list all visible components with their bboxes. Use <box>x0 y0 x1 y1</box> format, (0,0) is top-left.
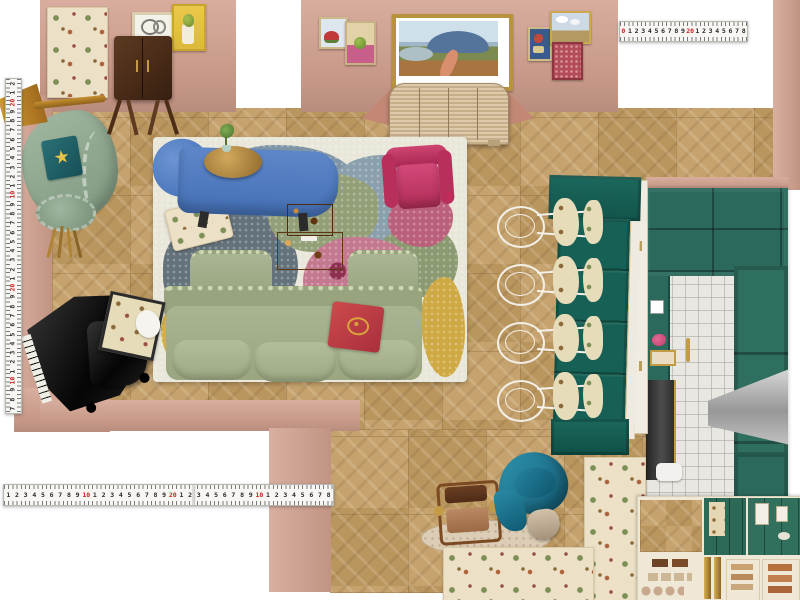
measuring-tape-bottom[interactable]: 1234567891012345678920123456789101234567… <box>3 484 334 506</box>
tape-unit-number: 9 <box>9 202 18 206</box>
inset-copper-item <box>768 564 792 571</box>
tape-unit-number: 9 <box>9 295 18 299</box>
brass-leg <box>66 228 72 258</box>
tape-unit-number: 6 <box>660 28 667 35</box>
inset-wallpaper-roll <box>709 502 725 536</box>
inset-shelf-column <box>726 559 760 600</box>
watermelon <box>324 31 339 43</box>
chair-cushion <box>553 314 579 362</box>
tape-unit-number: 8 <box>740 28 747 35</box>
pear-still-life[interactable] <box>172 4 206 51</box>
chair-cushion <box>553 372 579 420</box>
tape-unit-number: 10 <box>82 492 91 499</box>
tape-unit-number: 1 <box>627 28 634 35</box>
tape-unit-number: 3 <box>21 492 30 499</box>
tape-unit-number: 8 <box>673 28 680 35</box>
chair-cushion <box>553 198 579 246</box>
tape-unit-number: 7 <box>9 128 18 132</box>
tape-unit-number: 4 <box>117 492 126 499</box>
tape-unit-number: 2 <box>9 360 18 364</box>
dining-chair[interactable] <box>497 314 607 366</box>
starfish-icon: ★ <box>52 146 72 169</box>
kitchen-upper-cabinets <box>646 188 788 276</box>
tape-unit-number: 4 <box>203 492 212 499</box>
brass-leg <box>73 230 83 258</box>
tape-unit-number: 7 <box>734 28 741 35</box>
inset-board <box>652 559 668 567</box>
tape-unit-number: 2 <box>9 174 18 178</box>
chinoiserie-rug-wide[interactable] <box>443 547 594 600</box>
tape-unit-number: 1 <box>264 492 273 499</box>
tape-unit-number: 7 <box>229 492 238 499</box>
gallery-blue-still-life[interactable] <box>528 27 552 61</box>
tape-unit-number: 6 <box>220 492 229 499</box>
tape-unit-number: 7 <box>9 221 18 225</box>
tape-unit-number: 4 <box>714 28 721 35</box>
tape-unit-number: 6 <box>9 230 18 234</box>
tape-unit-number: 4 <box>9 156 18 160</box>
tape-unit-number: 3 <box>108 492 117 499</box>
tape-unit-number: 9 <box>9 388 18 392</box>
tape-unit-number: 2 <box>9 267 18 271</box>
sofa-cushion <box>172 340 252 380</box>
inset-floor-sample <box>640 500 702 552</box>
credenza-seam <box>448 88 449 140</box>
inset-board <box>672 559 688 567</box>
chair-wire-ring-inner <box>505 388 535 412</box>
tape-unit-number: 4 <box>9 249 18 253</box>
tape-unit-number: 8 <box>151 492 160 499</box>
still-life-base <box>533 46 544 53</box>
tape-unit-number: 8 <box>9 397 18 401</box>
safari-chair[interactable] <box>436 480 498 542</box>
tape-unit-number: 3 <box>707 28 714 35</box>
credenza-seam <box>477 88 478 140</box>
inset-jar-row <box>648 573 692 581</box>
tape-unit-number: 9 <box>680 28 687 35</box>
tape-unit-number: 2 <box>99 492 108 499</box>
tape-unit-number: 9 <box>9 110 18 114</box>
brass-stool-legs[interactable] <box>48 226 82 262</box>
tape-unit-number: 20 <box>168 492 177 499</box>
gold-crest-motif <box>346 316 370 337</box>
kitchen-photo[interactable] <box>646 188 788 545</box>
tape-unit-number: 5 <box>212 492 221 499</box>
tape-unit-number: 20 <box>9 98 18 106</box>
tape-unit-number: 8 <box>9 212 18 216</box>
brass-pot-rail <box>686 338 690 362</box>
tape-unit-number: 1 <box>4 492 13 499</box>
sofa-cushion <box>254 342 336 382</box>
tape-unit-number: 5 <box>125 492 134 499</box>
moodboard-canvas: ★ <box>0 0 800 600</box>
tape-unit-number: 2 <box>13 492 22 499</box>
inset-shelf-item <box>731 584 753 590</box>
stand-leg <box>126 100 139 136</box>
fruit-still-life[interactable] <box>345 21 376 65</box>
tape-unit-number: 4 <box>647 28 654 35</box>
tape-unit-number: 20 <box>686 28 694 35</box>
tape-unit-number: 10 <box>255 492 264 499</box>
pear <box>183 14 194 27</box>
measuring-tape-left[interactable]: 2120987654321109876543212098765432110987 <box>5 78 22 414</box>
inset-brass-bar <box>704 557 711 599</box>
tape-unit-number: 6 <box>47 492 56 499</box>
cabinet-body <box>114 36 172 100</box>
tape-unit-number: 8 <box>9 119 18 123</box>
tape-unit-number: 1 <box>177 492 186 499</box>
tape-unit-number: 3 <box>9 351 18 355</box>
chair-wire-ring-inner <box>505 330 535 354</box>
plant-leaves <box>220 124 234 138</box>
tape-unit-number: 8 <box>324 492 333 499</box>
measuring-tape-top[interactable]: 01234567892012345678 <box>619 21 748 42</box>
gallery-pink-abstract[interactable] <box>552 42 583 80</box>
stand-leg <box>147 100 160 136</box>
tape-unit-number: 0 <box>620 28 627 35</box>
inset-copper-item <box>768 586 792 593</box>
starfish-pillow[interactable]: ★ <box>41 135 83 181</box>
teal-swivel-chair[interactable] <box>488 447 584 550</box>
tape-unit-number: 1 <box>9 369 18 373</box>
inset-green-cabinet <box>748 498 800 555</box>
tape-unit-number: 3 <box>9 258 18 262</box>
chair-wire-ring-inner <box>505 272 535 296</box>
tape-unit-number: 7 <box>143 492 152 499</box>
tape-unit-number: 3 <box>281 492 290 499</box>
inset-label-card <box>776 506 788 522</box>
tape-unit-number: 9 <box>160 492 169 499</box>
safari-seat <box>446 507 490 534</box>
credenza-seam <box>419 88 420 140</box>
chaise-leg <box>198 211 210 228</box>
tape-unit-number: 1 <box>9 184 18 188</box>
safari-back-sling <box>444 485 487 504</box>
pedestal <box>182 24 194 44</box>
kitchen-plan-inset[interactable] <box>637 496 800 600</box>
tape-unit-number: 4 <box>290 492 299 499</box>
tape-unit-number: 7 <box>666 28 673 35</box>
tape-unit-number: 2 <box>9 82 18 86</box>
chair-wire-ring-inner <box>505 214 535 238</box>
tape-unit-number: 10 <box>9 377 18 385</box>
inset-brass-bar <box>714 557 721 599</box>
tape-unit-number: 8 <box>9 304 18 308</box>
tape-unit-number: 6 <box>307 492 316 499</box>
lamp-stem <box>34 95 106 109</box>
tape-unit-number: 9 <box>246 492 255 499</box>
tape-unit-number: 20 <box>9 284 18 292</box>
sage-velvet-sofa[interactable] <box>162 248 426 382</box>
wall-bottom-stub <box>269 428 331 592</box>
tape-unit-number: 6 <box>9 323 18 327</box>
inset-plate-stack <box>640 585 684 597</box>
tape-unit-number: 5 <box>9 239 18 243</box>
sketch-scribble <box>153 20 166 34</box>
wall-right-strip <box>773 0 800 190</box>
chair-cushion <box>583 316 603 360</box>
tape-unit-number: 5 <box>721 28 728 35</box>
tape-unit-number: 3 <box>640 28 647 35</box>
cabinet-handle <box>136 60 138 72</box>
tape-unit-number: 2 <box>633 28 640 35</box>
swivel-pedestal <box>526 507 562 541</box>
toaster <box>656 463 682 481</box>
inset-shelf-item <box>731 564 753 570</box>
tape-unit-number: 5 <box>298 492 307 499</box>
inset-green-cabinet <box>704 498 746 555</box>
brass-leg <box>57 226 63 258</box>
small-wall-frame <box>650 300 664 314</box>
tape-unit-number: 7 <box>9 407 18 411</box>
credenza-leg <box>488 140 500 146</box>
tape-unit-number: 6 <box>9 137 18 141</box>
tape-unit-number: 5 <box>9 332 18 336</box>
coastal-landscape-painting[interactable] <box>392 14 513 91</box>
chair-cushion <box>553 256 579 304</box>
chair-cushion <box>583 374 603 418</box>
brass-tray <box>650 350 676 366</box>
cloud <box>556 16 568 23</box>
tape-unit-number: 3 <box>194 492 203 499</box>
inset-shelf-item <box>731 574 753 580</box>
inset-copper-item <box>768 575 792 582</box>
reeded-credenza[interactable] <box>389 83 509 145</box>
tape-unit-number: 6 <box>134 492 143 499</box>
tape-unit-number: 7 <box>316 492 325 499</box>
tape-unit-number: 1 <box>694 28 701 35</box>
tape-unit-number: 7 <box>9 314 18 318</box>
tape-unit-number: 5 <box>39 492 48 499</box>
red-blossom <box>534 34 543 43</box>
tape-unit-number: 3 <box>9 165 18 169</box>
chair-cushion <box>583 200 603 244</box>
painting-canvas <box>399 21 498 76</box>
tape-unit-number: 6 <box>727 28 734 35</box>
cabinet-handle <box>147 60 149 72</box>
mountain <box>427 31 489 53</box>
brass-leg <box>46 228 56 258</box>
gallery-cloud-landscape[interactable] <box>550 11 591 44</box>
tape-unit-number: 2 <box>701 28 708 35</box>
sea <box>399 47 433 61</box>
inset-sink <box>778 532 790 540</box>
door-hinge <box>639 361 642 371</box>
bar-cabinet[interactable] <box>112 36 174 138</box>
tape-unit-number: 4 <box>30 492 39 499</box>
watermelon-still-life[interactable] <box>319 17 348 49</box>
tape-unit-number: 5 <box>653 28 660 35</box>
chair-cushion <box>583 258 603 302</box>
tape-unit-number: 2 <box>272 492 281 499</box>
pink-flowers <box>652 334 666 346</box>
dining-chair[interactable] <box>497 198 607 250</box>
tape-unit-number: 1 <box>9 91 18 95</box>
green-apple <box>354 37 366 49</box>
piano-leg <box>138 372 151 385</box>
inset-shelf-column <box>762 559 800 600</box>
tape-unit-number: 8 <box>65 492 74 499</box>
plant-vase <box>222 145 231 152</box>
tape-unit-number: 4 <box>9 342 18 346</box>
pink-armchair[interactable] <box>381 144 455 215</box>
tape-unit-number: 5 <box>9 147 18 151</box>
dining-chair[interactable] <box>497 372 607 424</box>
remote-control <box>301 236 317 241</box>
inset-label-card <box>755 503 769 525</box>
cabinet-door-seam <box>142 38 143 98</box>
tape-seam <box>192 485 194 505</box>
armchair-seat <box>396 163 441 210</box>
tape-unit-number: 9 <box>73 492 82 499</box>
tape-unit-number: 1 <box>91 492 100 499</box>
dining-chair[interactable] <box>497 256 607 308</box>
cloud <box>570 19 580 25</box>
red-crest-pillow[interactable] <box>327 301 384 353</box>
tape-unit-number: 7 <box>56 492 65 499</box>
tape-unit-number: 8 <box>238 492 247 499</box>
tape-unit-number: 10 <box>9 191 18 199</box>
potted-plant[interactable] <box>216 124 236 152</box>
tape-unit-number: 1 <box>9 277 18 281</box>
